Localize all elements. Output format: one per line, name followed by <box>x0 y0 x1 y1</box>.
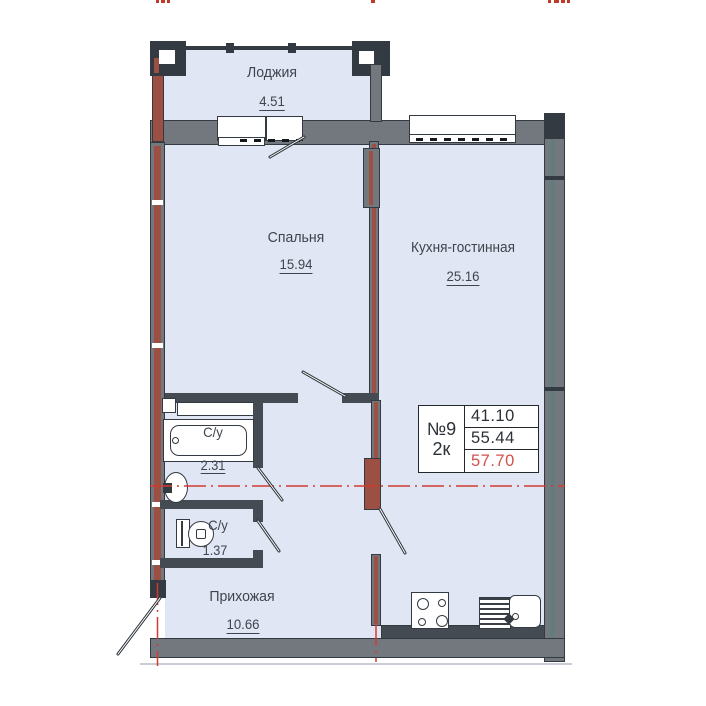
clipped-red-text-fragment <box>371 0 375 3</box>
apartment-info-table: №9 2к 41.10 55.44 57.70 <box>418 405 539 473</box>
room-area-bathroom: 2.31 <box>201 458 226 473</box>
room-area-bedroom: 15.94 <box>280 256 313 272</box>
room-area-kitchen: 25.16 <box>447 268 480 284</box>
stove-burner <box>436 615 448 627</box>
wall-joint-tick <box>544 176 565 180</box>
balcony-glazing-hatch <box>240 139 300 142</box>
room-label-wc: С/у <box>208 517 228 533</box>
shaft-box-small <box>162 398 176 413</box>
hall-kitchen-pilaster <box>364 458 381 510</box>
wall-joint <box>152 200 163 205</box>
balcony-unit-divider <box>265 117 267 140</box>
room-label-loggia: Лоджия <box>247 64 297 81</box>
kitchen-sink-drainboard <box>479 597 511 629</box>
left-wall-masonry <box>154 146 161 594</box>
room-label-hallway: Прихожая <box>209 588 274 605</box>
corner-column-notch <box>159 50 175 64</box>
loggia-rail-post <box>226 43 234 53</box>
kitchen-sink-faucet-knob <box>512 613 519 620</box>
floor-area-value: 55.44 <box>465 428 538 450</box>
clipped-red-text-fragment <box>161 0 165 3</box>
wall-pilaster-masonry <box>369 151 373 205</box>
kitchen-window <box>409 115 516 135</box>
ground-line <box>140 663 572 665</box>
apartment-id-cell: №9 2к <box>419 406 465 472</box>
floor-plan: №9 2к 41.10 55.44 57.70 Лоджия 4.51 Спал… <box>0 0 706 706</box>
wc-bottom-wall <box>160 558 263 568</box>
living-area-value: 41.10 <box>465 406 538 428</box>
clipped-red-text-fragment <box>567 0 570 3</box>
ventilation-duct <box>177 402 254 416</box>
stove-burner <box>438 599 446 607</box>
loggia-rail-post <box>288 43 296 53</box>
room-label-kitchen: Кухня-гостинная <box>411 240 515 256</box>
corner-column-masonry <box>154 58 159 73</box>
room-count: 2к <box>433 439 451 459</box>
bathroom-right-wall <box>253 393 263 468</box>
kitchen-glazing-hatch <box>416 138 510 141</box>
toilet-bowl-inner <box>196 529 206 539</box>
hall-kitchen-wall-masonry <box>374 402 378 458</box>
room-area-loggia: 4.51 <box>259 93 285 109</box>
clipped-red-text-fragment <box>554 0 559 3</box>
toilet-tank-line <box>181 521 183 546</box>
loggia-floor <box>163 50 370 122</box>
corner-column-notch <box>359 51 374 64</box>
clipped-red-text-fragment <box>548 0 551 3</box>
wc-right-wall-upper <box>253 500 263 522</box>
wall-joint <box>152 343 163 348</box>
bathtub-drain <box>172 437 179 444</box>
clipped-red-text-fragment <box>167 0 170 3</box>
room-area-wc: 1.37 <box>203 543 228 558</box>
total-area-value: 57.70 <box>465 450 538 472</box>
washbasin-tap <box>163 483 172 493</box>
loggia-right-wall <box>370 64 382 122</box>
stove-burner <box>417 598 429 610</box>
apartment-number: №9 <box>427 419 456 439</box>
clipped-red-text-fragment <box>156 0 159 3</box>
room-label-bathroom: С/у <box>203 424 223 440</box>
clipped-red-text-fragment <box>561 0 565 3</box>
room-area-hallway: 10.66 <box>227 616 260 632</box>
hall-kitchen-wall-masonry-lower <box>374 556 378 624</box>
loggia-glazing-rail <box>184 46 354 50</box>
kitchen-sink-basin <box>509 595 541 628</box>
bottom-outer-wall <box>150 638 565 658</box>
wall-joint-tick <box>544 387 565 391</box>
room-label-bedroom: Спальня <box>268 229 325 246</box>
stove-burner <box>418 618 426 626</box>
entrance-door-jamb <box>150 580 166 598</box>
right-wall-top-block <box>544 113 565 139</box>
